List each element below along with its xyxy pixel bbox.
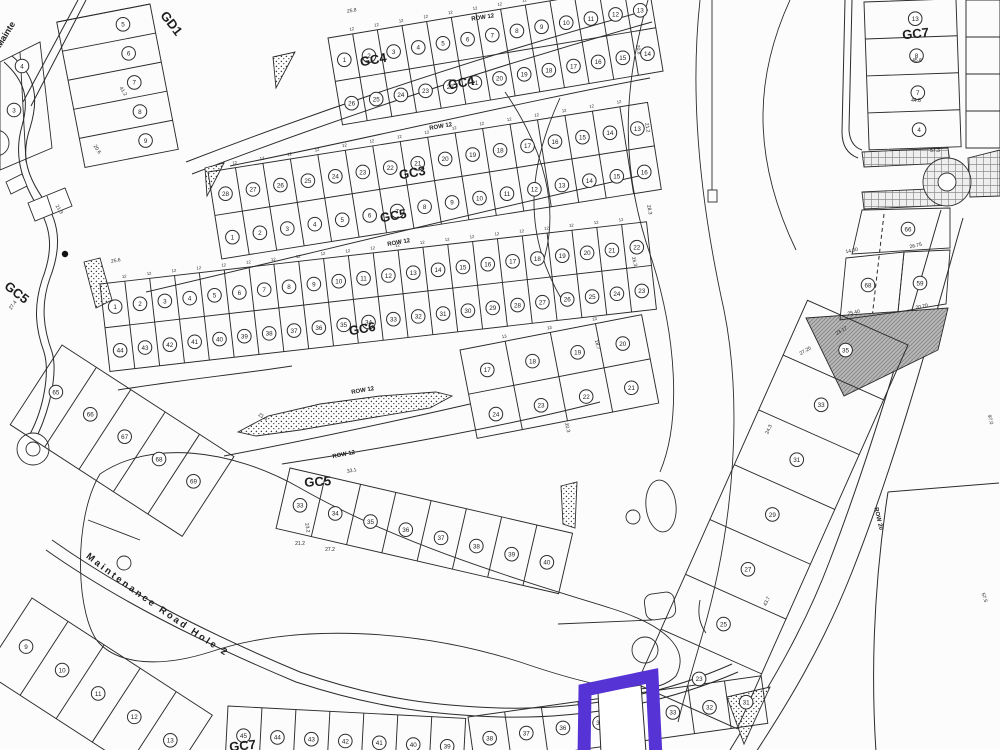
lot-number: 31 bbox=[440, 311, 448, 318]
lot-number: 10 bbox=[476, 195, 484, 202]
lot-dimension: 12 bbox=[494, 231, 500, 237]
lot-number: 38 bbox=[486, 735, 494, 742]
lot-boundary bbox=[417, 501, 431, 561]
stipple-triangle bbox=[273, 52, 295, 88]
fairway-contour bbox=[505, 92, 550, 262]
plat-map-stage: Subdivision plat map with golf course an… bbox=[0, 0, 1000, 750]
lot-dimension: 12 bbox=[507, 116, 513, 122]
lot-dimension: 12 bbox=[374, 22, 380, 28]
lot-boundary bbox=[661, 629, 761, 674]
lot-number: 23 bbox=[538, 403, 546, 410]
block-label: GC5 bbox=[304, 473, 332, 490]
lot-number: 36 bbox=[402, 527, 410, 534]
road-edge bbox=[849, 0, 862, 150]
lot-number: 40 bbox=[216, 336, 224, 343]
lot-boundary bbox=[79, 120, 172, 138]
lot-boundary bbox=[148, 434, 200, 514]
lot-number: 14 bbox=[586, 178, 594, 185]
lot-number: 28 bbox=[514, 302, 522, 309]
lot-dimension: 12 bbox=[589, 103, 595, 109]
lot-boundary bbox=[685, 574, 785, 619]
lot-boundary bbox=[68, 62, 161, 80]
lot-number: 33 bbox=[669, 710, 677, 717]
lot-number: 38 bbox=[266, 331, 274, 338]
lot-number: 38 bbox=[473, 543, 481, 550]
lot-number: 12 bbox=[385, 273, 393, 280]
lot-number: 13 bbox=[634, 126, 642, 133]
fairway-contour bbox=[678, 0, 734, 722]
lot-boundary bbox=[293, 710, 296, 750]
lot-boundary bbox=[74, 91, 167, 109]
lot-number: 43 bbox=[141, 345, 149, 352]
dimension-label: 57.5 bbox=[980, 592, 989, 603]
dimension-label: 21.2 bbox=[295, 541, 305, 547]
lot-dimension: 13 bbox=[547, 325, 553, 331]
hole2-fairway-outline bbox=[80, 453, 680, 689]
lot-number: 12 bbox=[531, 187, 539, 194]
paver-crosswalk bbox=[968, 150, 1000, 197]
lot-boundary bbox=[361, 713, 364, 750]
bunker bbox=[117, 556, 131, 570]
lot-dimension: 12 bbox=[469, 234, 475, 240]
lot-boundary bbox=[56, 645, 104, 719]
lot-number: 18 bbox=[529, 358, 537, 365]
lot-number: 35 bbox=[842, 347, 850, 354]
dimension-label: 33.1 bbox=[346, 467, 357, 475]
lot-dimension: 12 bbox=[497, 1, 503, 7]
lot-dimension: 12 bbox=[171, 268, 177, 274]
lot-number: 26 bbox=[348, 101, 356, 108]
lot-number: 7 bbox=[491, 32, 495, 39]
lot-boundary bbox=[259, 708, 262, 750]
dimension-label: 24.3 bbox=[764, 424, 774, 436]
lot-number: 17 bbox=[484, 367, 492, 374]
lot-number: 20 bbox=[496, 76, 504, 83]
lot-dimension: 12 bbox=[320, 251, 326, 257]
lot-number: 39 bbox=[241, 333, 249, 340]
dimension-label: 26.75 bbox=[909, 242, 923, 251]
lot-number: 3 bbox=[163, 298, 167, 305]
lot-dimension: 12 bbox=[423, 14, 429, 20]
dimension-label: 25.8 bbox=[347, 7, 358, 15]
lot-number: 4 bbox=[188, 295, 192, 302]
dimension-label: 27.25 bbox=[799, 345, 813, 357]
lot-number: 35 bbox=[367, 519, 375, 526]
lot-number: 29 bbox=[489, 305, 497, 312]
lot-dimension: 12 bbox=[534, 112, 540, 118]
lot-boundary bbox=[710, 520, 810, 565]
lot-number: 21 bbox=[628, 385, 636, 392]
dimension-label: 20.6 bbox=[92, 144, 102, 156]
lot-number: 28 bbox=[222, 191, 230, 198]
corner-label: GC7 bbox=[228, 737, 256, 750]
lot-number: 36 bbox=[559, 725, 567, 732]
lot-boundary bbox=[113, 412, 165, 492]
lot-number: 24 bbox=[332, 174, 340, 181]
plat-map: 1212121212121212121212121212121212121212… bbox=[0, 0, 1000, 750]
dimension-label: 27.2 bbox=[325, 547, 335, 553]
dimension-label: 25.6 bbox=[111, 257, 122, 265]
lot-number: 14 bbox=[644, 51, 652, 58]
golf-green bbox=[643, 479, 678, 534]
lot-dimension: 12 bbox=[147, 271, 153, 277]
lot-number: 6 bbox=[466, 36, 470, 43]
lot-dimension: 12 bbox=[398, 18, 404, 24]
lot-number: 42 bbox=[342, 738, 350, 745]
dimension-label: 26.3 bbox=[630, 256, 638, 267]
road-edge bbox=[118, 366, 292, 390]
highlighted-lot[interactable] bbox=[584, 676, 656, 750]
lot-number: 11 bbox=[588, 16, 595, 23]
lot-boundary bbox=[429, 717, 432, 750]
lot-number: 11 bbox=[360, 276, 367, 283]
lot-number: 40 bbox=[543, 560, 551, 567]
lot-number: 3 bbox=[392, 49, 396, 56]
lot-dimension: 12 bbox=[420, 239, 426, 245]
lot-boundary bbox=[734, 465, 834, 510]
dimension-label: 28.3 bbox=[645, 204, 653, 215]
parcel-boundary bbox=[888, 483, 999, 492]
lot-number: 27 bbox=[539, 300, 547, 307]
lot-dimension: 12 bbox=[448, 9, 454, 15]
lot-number: 35 bbox=[340, 322, 348, 329]
maintenance-building bbox=[6, 174, 27, 194]
lot-number: 18 bbox=[497, 148, 505, 155]
hole2-detail-line bbox=[88, 520, 140, 540]
lot-boundary bbox=[505, 341, 522, 429]
road-label: ROW 12 bbox=[332, 450, 356, 460]
lot-number: 22 bbox=[633, 244, 641, 251]
lot-number: 9 bbox=[540, 24, 544, 31]
block-label: GC6 bbox=[348, 319, 377, 338]
lot-number: 40 bbox=[410, 742, 418, 749]
lot-number: 10 bbox=[59, 667, 67, 674]
lot-boundary bbox=[79, 390, 131, 470]
dimension-label: 44.8 bbox=[911, 98, 921, 104]
gray-hatched-lot[interactable] bbox=[806, 308, 948, 396]
lot-dimension: 12 bbox=[232, 160, 238, 166]
lot-number: 37 bbox=[291, 328, 299, 335]
dimension-label: 20.3 bbox=[563, 422, 571, 433]
lot-number: 26 bbox=[277, 182, 285, 189]
lot-number: 44 bbox=[117, 348, 125, 355]
lot-number: 5 bbox=[213, 293, 217, 300]
parcel-boundary bbox=[874, 492, 888, 750]
lot-dimension: 12 bbox=[196, 265, 202, 271]
fairway-contour bbox=[763, 0, 796, 250]
lot-number: 37 bbox=[523, 730, 531, 737]
lot-number: 20 bbox=[619, 341, 627, 348]
lot-dimension: 12 bbox=[616, 99, 622, 105]
lot-number: 16 bbox=[484, 261, 492, 268]
lot-number: 1 bbox=[343, 57, 347, 64]
lot-number: 1 bbox=[231, 234, 235, 241]
lot-number: 9 bbox=[24, 644, 28, 651]
block-label: GD1 bbox=[157, 8, 185, 38]
lot-number: 9 bbox=[144, 138, 148, 145]
lot-number: 14 bbox=[606, 130, 614, 137]
lot-dimension: 13 bbox=[592, 316, 598, 322]
lot-number: 8 bbox=[515, 28, 519, 35]
lot-number: 31 bbox=[743, 699, 751, 706]
lot-number: 8 bbox=[423, 204, 427, 211]
lot-boundary bbox=[395, 715, 398, 750]
road-label: ROW 20 bbox=[872, 507, 883, 531]
fairway-contour bbox=[628, 0, 673, 472]
lot-number: 4 bbox=[313, 221, 317, 228]
road-label: ROW 12 bbox=[471, 13, 495, 23]
dimension-label: 45.6 bbox=[912, 58, 922, 64]
lot-number: 34 bbox=[332, 511, 340, 518]
lot-number: 16 bbox=[595, 59, 603, 66]
lot-dimension: 12 bbox=[618, 217, 624, 223]
lot-number: 19 bbox=[574, 350, 582, 357]
road-edge bbox=[4, 62, 50, 434]
lot-number: 5 bbox=[121, 22, 125, 29]
lot-number: 13 bbox=[637, 8, 645, 15]
lot-number: 17 bbox=[509, 259, 517, 266]
dimension-label: 21.2 bbox=[643, 122, 651, 133]
lot-number: 12 bbox=[612, 12, 620, 19]
lot-number: 18 bbox=[534, 256, 542, 263]
lot-number: 15 bbox=[579, 134, 587, 141]
lot-number: 32 bbox=[706, 705, 714, 712]
lot-dimension: 12 bbox=[296, 254, 302, 260]
lot-number: 7 bbox=[133, 80, 137, 87]
lot-boundary bbox=[759, 410, 859, 455]
row20-road-edge bbox=[756, 218, 963, 750]
bunker bbox=[632, 637, 658, 663]
lot-number: 12 bbox=[131, 714, 139, 721]
lot-number: 25 bbox=[589, 294, 597, 301]
lot-dimension: 12 bbox=[522, 0, 528, 3]
lot-number: 3 bbox=[12, 107, 16, 114]
survey-dot bbox=[62, 251, 68, 257]
lot-number: 13 bbox=[167, 738, 175, 745]
lot-boundary bbox=[327, 711, 330, 750]
bunker bbox=[626, 510, 640, 524]
dimension-label: 57.3 bbox=[930, 148, 940, 154]
highlighted-lot-parcel[interactable] bbox=[598, 685, 646, 750]
lot-dimension: 12 bbox=[569, 222, 575, 228]
lot-number: 9 bbox=[450, 200, 454, 207]
lot-boundary bbox=[347, 484, 361, 544]
lot-number: 65 bbox=[52, 389, 60, 396]
lot-number: 5 bbox=[441, 41, 445, 48]
lot-number: 15 bbox=[613, 174, 621, 181]
lot-dimension: 12 bbox=[519, 228, 525, 234]
block-label: GC4 bbox=[447, 73, 477, 93]
lot-number: 67 bbox=[121, 434, 129, 441]
lot-dimension: 12 bbox=[479, 121, 485, 127]
lot-number: 59 bbox=[916, 280, 924, 287]
lot-number: 6 bbox=[127, 51, 131, 58]
maintenance-road-label: Maintenance Road Hole 2 bbox=[84, 551, 231, 659]
lot-number: 11 bbox=[95, 691, 102, 698]
cart-path bbox=[558, 600, 706, 633]
stipple-median-island bbox=[238, 392, 452, 436]
lot-boundary bbox=[92, 668, 140, 742]
lot-boundary bbox=[62, 33, 155, 51]
lot-number: 25 bbox=[373, 96, 381, 103]
lot-boundary bbox=[867, 73, 959, 76]
block-label: GC5 bbox=[379, 206, 408, 225]
lot-number: 69 bbox=[190, 479, 198, 486]
corner-label: Mainte bbox=[0, 20, 17, 49]
lot-number: 8 bbox=[287, 284, 291, 291]
lot-boundary bbox=[452, 509, 466, 569]
lot-number: 29 bbox=[769, 512, 777, 519]
lot-dimension: 12 bbox=[561, 108, 567, 114]
lot-dimension: 12 bbox=[246, 259, 252, 265]
lot-number: 15 bbox=[459, 264, 467, 271]
lot-number: 66 bbox=[87, 412, 95, 419]
lot-number: 4 bbox=[917, 127, 921, 134]
lot-boundary bbox=[595, 324, 612, 412]
lot-number: 37 bbox=[438, 535, 446, 542]
lot-number: 32 bbox=[415, 314, 423, 321]
lot-dimension: 12 bbox=[221, 262, 227, 268]
boundary-dashed bbox=[872, 214, 884, 318]
lot-number: 5 bbox=[340, 217, 344, 224]
lot-number: 39 bbox=[508, 551, 516, 558]
lot-number: 33 bbox=[818, 402, 826, 409]
dimension-label: 18.7 bbox=[593, 339, 601, 350]
lot-dimension: 12 bbox=[122, 273, 128, 279]
lot-number: 24 bbox=[613, 291, 621, 298]
row20-road-edge bbox=[730, 210, 941, 750]
lot-number: 17 bbox=[570, 63, 578, 70]
lot-number: 16 bbox=[551, 139, 559, 146]
lot-dimension: 12 bbox=[287, 151, 293, 157]
lot-boundary bbox=[382, 492, 396, 552]
lot-number: 1 bbox=[113, 304, 117, 311]
lot-dimension: 12 bbox=[445, 237, 451, 243]
cul-de-sac-center bbox=[938, 173, 956, 191]
lot-number: 43 bbox=[308, 737, 316, 744]
lot-number: 9 bbox=[312, 281, 316, 288]
tee-marker bbox=[708, 190, 717, 202]
lot-number: 41 bbox=[191, 339, 199, 346]
lot-number: 23 bbox=[359, 169, 367, 176]
lot-back-line bbox=[469, 359, 651, 394]
lot-dimension: 12 bbox=[594, 220, 600, 226]
lot-number: 27 bbox=[744, 567, 752, 574]
cul-de-sac-partial bbox=[0, 130, 9, 156]
lot-number: 18 bbox=[545, 67, 553, 74]
lot-number: 42 bbox=[166, 342, 174, 349]
lot-number: 68 bbox=[864, 282, 872, 289]
lot-dimension: 12 bbox=[345, 248, 351, 254]
lot-number: 24 bbox=[397, 92, 405, 99]
lot-dimension: 12 bbox=[397, 134, 403, 140]
lot-number: 13 bbox=[410, 270, 418, 277]
lot-number: 8 bbox=[138, 109, 142, 116]
lot-dimension: 13 bbox=[501, 333, 507, 339]
road-edge bbox=[31, 0, 86, 106]
lot-number: 23 bbox=[638, 288, 646, 295]
lot-number: 25 bbox=[304, 178, 312, 185]
road-label: ROW 12 bbox=[351, 386, 375, 396]
dimension-label: 97.0 bbox=[986, 414, 994, 425]
lot-number: 11 bbox=[504, 191, 511, 198]
lot-number: 33 bbox=[390, 317, 398, 324]
lot-boundary bbox=[868, 110, 960, 113]
lot-number: 66 bbox=[904, 226, 912, 233]
lot-dimension: 12 bbox=[369, 138, 375, 144]
lot-dimension: 12 bbox=[271, 256, 277, 262]
lot-number: 39 bbox=[444, 744, 452, 750]
lot-boundary bbox=[550, 332, 567, 420]
lot-number: 20 bbox=[584, 250, 592, 257]
lot-boundary bbox=[523, 525, 537, 585]
lot-number: 6 bbox=[238, 290, 242, 297]
lot-band-eastcol[interactable] bbox=[966, 0, 1000, 148]
lot-number: 14 bbox=[435, 267, 443, 274]
lot-number: 44 bbox=[274, 735, 282, 742]
lot-boundary bbox=[541, 707, 548, 750]
lot-number: 4 bbox=[20, 63, 24, 70]
lot-number: 19 bbox=[469, 152, 477, 159]
dimension-label: 41.2 bbox=[118, 86, 128, 98]
lot-number: 20 bbox=[442, 156, 450, 163]
lot-dimension: 12 bbox=[472, 5, 478, 11]
lot-boundary bbox=[488, 517, 502, 577]
lot-dimension: 12 bbox=[349, 26, 355, 32]
lot-number: 7 bbox=[262, 287, 266, 294]
lot-number: 13 bbox=[912, 16, 920, 23]
lot-boundary bbox=[20, 621, 68, 695]
lot-number: 41 bbox=[376, 740, 384, 747]
lot-number: 25 bbox=[720, 621, 728, 628]
lot-number: 3 bbox=[286, 226, 290, 233]
lot-number: 31 bbox=[793, 457, 801, 464]
lot-number: 19 bbox=[521, 72, 529, 79]
lot-number: 23 bbox=[696, 676, 704, 683]
lot-number: 26 bbox=[564, 297, 572, 304]
lot-dimension: 12 bbox=[544, 225, 550, 231]
block-label: GC7 bbox=[901, 25, 929, 43]
lot-dimension: 12 bbox=[342, 142, 348, 148]
lot-number: 33 bbox=[296, 503, 304, 510]
lot-number: 17 bbox=[524, 143, 532, 150]
lot-number: 19 bbox=[559, 253, 567, 260]
lot-number: 22 bbox=[583, 394, 591, 401]
lot-number: 24 bbox=[492, 411, 500, 418]
lot-number: 68 bbox=[156, 456, 164, 463]
lot-boundary bbox=[45, 367, 97, 447]
lot-number: 6 bbox=[368, 213, 372, 220]
cul-de-sac-inner bbox=[26, 442, 40, 456]
stipple-strip bbox=[561, 482, 577, 528]
lot-number: 7 bbox=[916, 90, 920, 97]
lot-dimension: 12 bbox=[259, 155, 265, 161]
lot-dimension: 12 bbox=[370, 245, 376, 251]
lot-number: 10 bbox=[563, 20, 571, 27]
lot-number: 2 bbox=[258, 230, 262, 237]
lot-number: 22 bbox=[387, 165, 395, 172]
lot-number: 15 bbox=[619, 55, 627, 62]
lot-number: 23 bbox=[422, 88, 430, 95]
dimension-label: 43.7 bbox=[762, 596, 772, 608]
lot-number: 16 bbox=[641, 169, 649, 176]
lot-number: 10 bbox=[335, 278, 343, 285]
lot-number: 13 bbox=[558, 182, 566, 189]
lot-number: 21 bbox=[608, 247, 616, 254]
lot-boundary bbox=[688, 686, 695, 734]
lot-number: 4 bbox=[417, 45, 421, 52]
lot-number: 36 bbox=[315, 325, 323, 332]
